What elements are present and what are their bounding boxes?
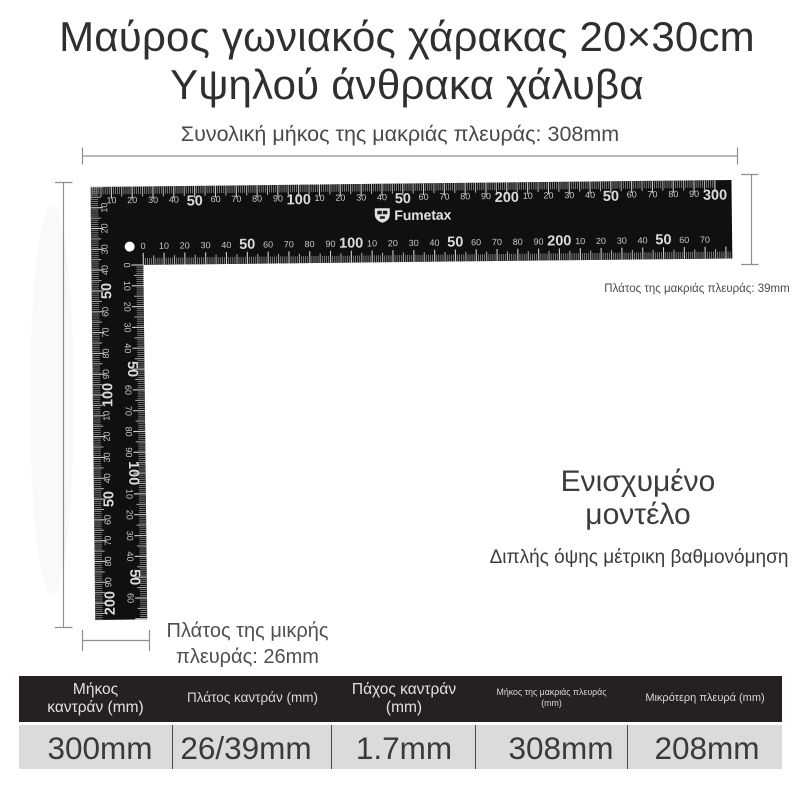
svg-text:10: 10: [124, 489, 134, 499]
svg-text:200: 200: [495, 190, 519, 206]
svg-text:90: 90: [124, 447, 134, 457]
svg-text:20: 20: [125, 510, 135, 520]
svg-text:20: 20: [127, 195, 137, 205]
svg-text:50: 50: [101, 491, 117, 507]
svg-text:10: 10: [159, 241, 169, 251]
svg-text:90: 90: [533, 237, 543, 247]
svg-text:100: 100: [339, 236, 363, 252]
svg-text:30: 30: [102, 452, 112, 462]
svg-text:70: 70: [700, 235, 710, 245]
svg-text:10: 10: [523, 191, 533, 201]
svg-text:40: 40: [169, 195, 179, 205]
svg-text:80: 80: [460, 191, 470, 201]
svg-text:100: 100: [287, 192, 311, 208]
svg-text:20: 20: [388, 238, 398, 248]
svg-text:30: 30: [200, 240, 210, 250]
svg-text:50: 50: [124, 361, 140, 377]
svg-text:0: 0: [141, 241, 146, 251]
svg-text:30: 30: [122, 322, 132, 332]
svg-text:70: 70: [101, 327, 111, 337]
svg-text:10: 10: [99, 203, 109, 213]
svg-text:30: 30: [617, 236, 627, 246]
svg-text:50: 50: [99, 283, 115, 299]
svg-text:100: 100: [100, 383, 116, 407]
svg-text:90: 90: [481, 191, 491, 201]
svg-text:80: 80: [124, 427, 134, 437]
svg-text:10: 10: [575, 236, 585, 246]
svg-text:0: 0: [122, 263, 132, 268]
svg-text:10: 10: [314, 193, 324, 203]
svg-text:60: 60: [125, 593, 135, 603]
svg-text:40: 40: [377, 192, 387, 202]
svg-text:80: 80: [103, 556, 113, 566]
svg-text:90: 90: [689, 189, 699, 199]
svg-text:50: 50: [603, 189, 619, 205]
svg-text:60: 60: [679, 235, 689, 245]
svg-text:40: 40: [125, 551, 135, 561]
svg-text:60: 60: [103, 515, 113, 525]
svg-text:10: 10: [101, 411, 111, 421]
svg-text:50: 50: [655, 232, 671, 248]
svg-text:40: 40: [585, 190, 595, 200]
svg-text:60: 60: [263, 239, 273, 249]
svg-text:50: 50: [187, 193, 203, 209]
svg-text:80: 80: [252, 194, 262, 204]
svg-text:30: 30: [125, 531, 135, 541]
svg-text:30: 30: [409, 238, 419, 248]
svg-text:70: 70: [284, 239, 294, 249]
svg-text:20: 20: [335, 193, 345, 203]
svg-text:80: 80: [668, 189, 678, 199]
svg-text:80: 80: [513, 237, 523, 247]
svg-text:30: 30: [564, 190, 574, 200]
svg-text:70: 70: [647, 189, 657, 199]
svg-text:30: 30: [148, 195, 158, 205]
svg-text:10: 10: [367, 238, 377, 248]
svg-text:50: 50: [126, 569, 142, 585]
svg-text:200: 200: [102, 591, 118, 615]
svg-text:60: 60: [100, 307, 110, 317]
svg-text:70: 70: [492, 237, 502, 247]
svg-text:90: 90: [103, 577, 113, 587]
svg-text:50: 50: [395, 191, 411, 207]
svg-text:40: 40: [221, 240, 231, 250]
svg-text:200: 200: [547, 233, 571, 249]
svg-text:20: 20: [102, 431, 112, 441]
svg-text:50: 50: [447, 234, 463, 250]
svg-text:20: 20: [596, 236, 606, 246]
svg-text:10: 10: [122, 281, 132, 291]
svg-text:20: 20: [180, 240, 190, 250]
svg-text:80: 80: [101, 348, 111, 358]
svg-text:300: 300: [703, 188, 727, 204]
svg-text:60: 60: [210, 194, 220, 204]
svg-text:60: 60: [471, 237, 481, 247]
svg-text:70: 70: [439, 192, 449, 202]
svg-text:70: 70: [103, 536, 113, 546]
svg-text:80: 80: [305, 239, 315, 249]
svg-text:90: 90: [101, 369, 111, 379]
svg-text:Fumetax: Fumetax: [394, 207, 451, 224]
svg-text:60: 60: [627, 189, 637, 199]
svg-text:50: 50: [239, 237, 255, 253]
svg-text:40: 40: [429, 238, 439, 248]
svg-text:20: 20: [99, 223, 109, 233]
svg-text:70: 70: [123, 406, 133, 416]
svg-text:20: 20: [543, 190, 553, 200]
svg-text:30: 30: [100, 244, 110, 254]
svg-text:60: 60: [419, 192, 429, 202]
svg-text:90: 90: [273, 193, 283, 203]
svg-text:40: 40: [100, 265, 110, 275]
svg-text:20: 20: [122, 302, 132, 312]
svg-text:100: 100: [125, 461, 141, 485]
svg-text:70: 70: [231, 194, 241, 204]
svg-text:40: 40: [638, 235, 648, 245]
svg-text:60: 60: [123, 385, 133, 395]
svg-text:90: 90: [325, 239, 335, 249]
svg-text:40: 40: [123, 343, 133, 353]
svg-text:30: 30: [356, 192, 366, 202]
svg-text:40: 40: [102, 473, 112, 483]
